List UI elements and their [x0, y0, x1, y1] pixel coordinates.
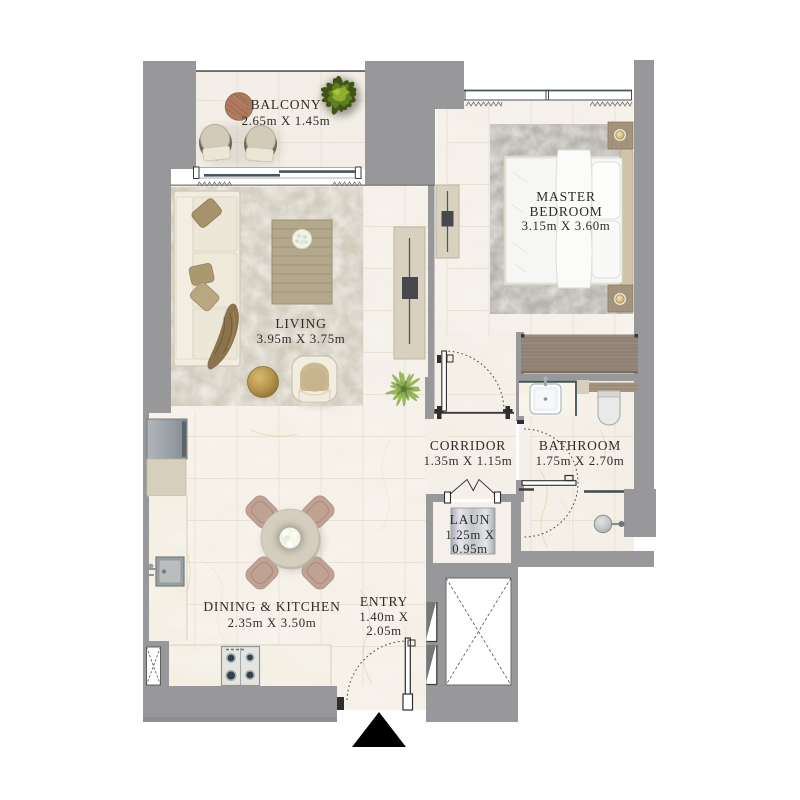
svg-text:BALCONY: BALCONY — [251, 97, 322, 112]
svg-text:MASTER: MASTER — [536, 189, 596, 204]
svg-text:ENTRY: ENTRY — [360, 594, 408, 609]
svg-text:DINING & KITCHEN: DINING & KITCHEN — [203, 599, 340, 614]
svg-text:2.05m: 2.05m — [366, 624, 402, 638]
svg-text:1.35m X 1.15m: 1.35m X 1.15m — [424, 454, 513, 468]
svg-text:3.15m X 3.60m: 3.15m X 3.60m — [522, 219, 611, 233]
svg-text:1.25m X: 1.25m X — [445, 528, 494, 542]
svg-text:CORRIDOR: CORRIDOR — [430, 438, 506, 453]
svg-text:2.35m X 3.50m: 2.35m X 3.50m — [228, 616, 317, 630]
svg-text:BEDROOM: BEDROOM — [529, 204, 602, 219]
svg-text:3.95m X 3.75m: 3.95m X 3.75m — [257, 332, 346, 346]
svg-text:BATHROOM: BATHROOM — [539, 438, 621, 453]
svg-text:0.95m: 0.95m — [452, 542, 488, 556]
svg-text:1.75m X 2.70m: 1.75m X 2.70m — [536, 454, 625, 468]
svg-text:2.65m X 1.45m: 2.65m X 1.45m — [242, 114, 331, 128]
svg-text:1.40m X: 1.40m X — [359, 610, 408, 624]
svg-text:LAUN: LAUN — [450, 512, 491, 527]
svg-text:LIVING: LIVING — [275, 316, 326, 331]
